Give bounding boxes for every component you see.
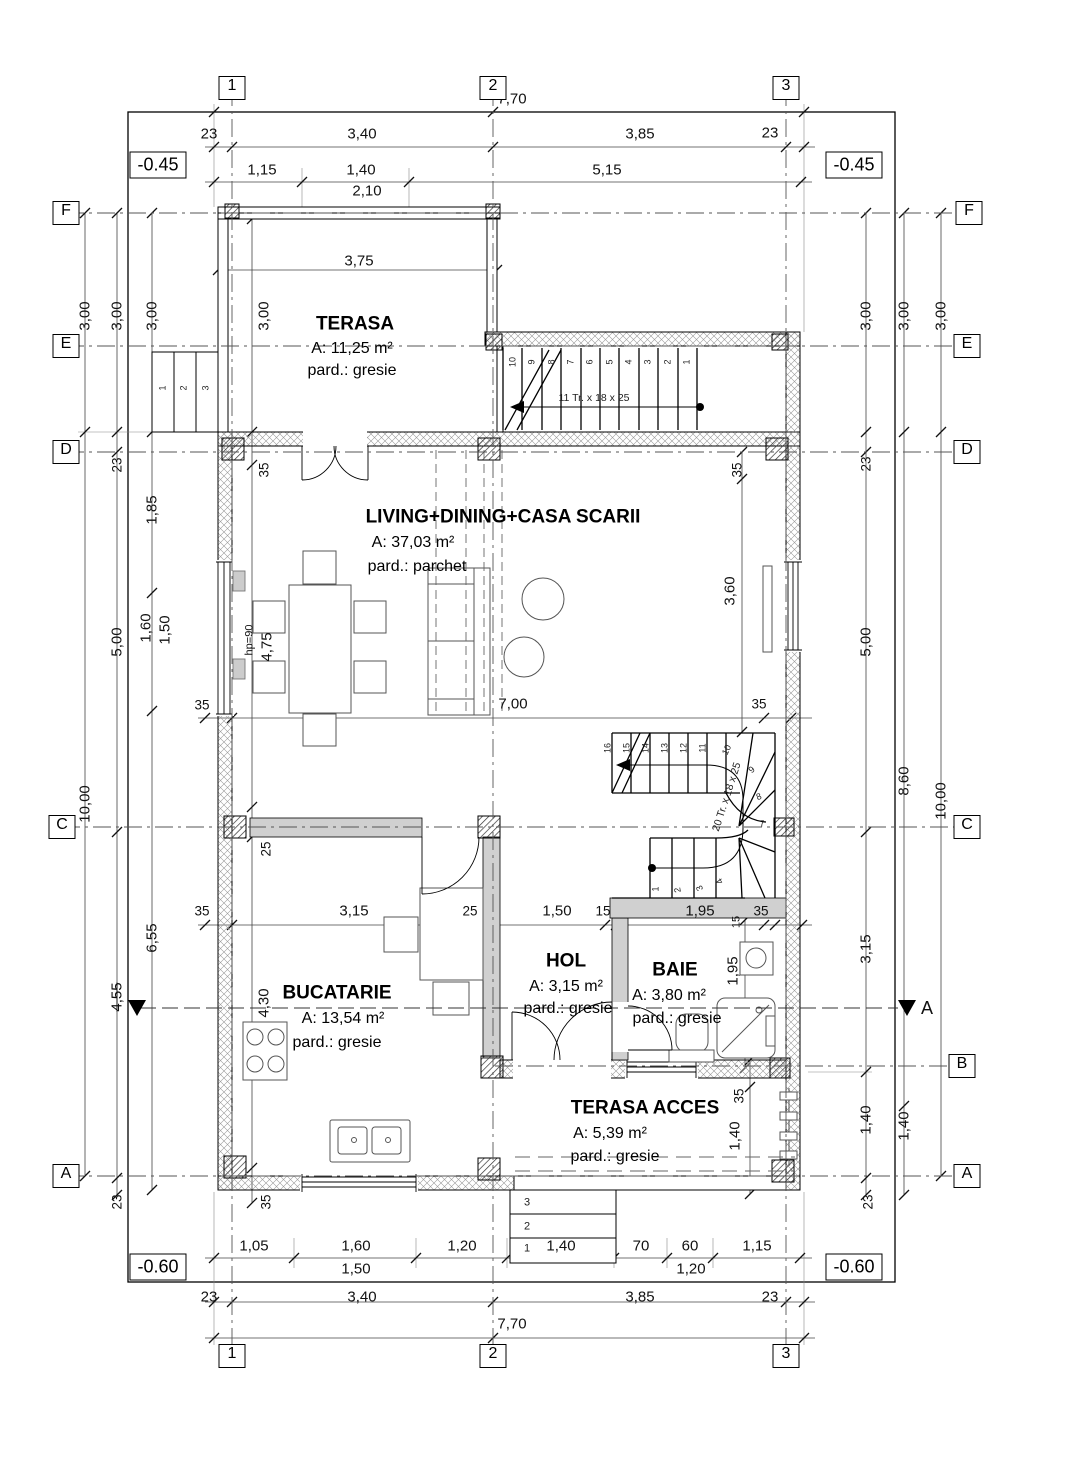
dim-label-revised: 4,55: [110, 982, 125, 1011]
dim-label: 1,95: [726, 956, 741, 985]
stair-tread-number: 6: [586, 359, 595, 364]
dim-label: 35: [194, 698, 209, 712]
dim-label: 25: [259, 841, 273, 856]
dim-label: 1,95: [685, 904, 714, 919]
stair-tread-number: 11: [699, 743, 708, 752]
room-name: HOL: [546, 952, 586, 971]
grid-bubble-col: 2: [480, 1344, 507, 1368]
dim-label: 5,00: [859, 627, 874, 656]
dim-label: 23: [861, 1194, 875, 1209]
room-area: A: 37,03 m²: [372, 535, 455, 551]
dim-label: 10,00: [934, 782, 949, 820]
room-area: A: 11,25 m²: [311, 341, 393, 357]
dim-label: 70: [633, 1239, 650, 1254]
room-name: LIVING+DINING+CASA SCARII: [366, 508, 641, 527]
dim-label: 8,60: [897, 766, 912, 795]
dim-label: 3,85: [625, 1290, 654, 1305]
room-area: A: 3,80 m²: [632, 988, 706, 1004]
dim-label: 3,85: [625, 127, 654, 142]
room-floor: pard.: gresie: [524, 1001, 613, 1017]
room-floor: pard.: gresie: [633, 1011, 722, 1027]
room-floor: pard.: parchet: [368, 559, 467, 575]
stair-main-winder: [612, 733, 775, 898]
dim-label: 23: [762, 126, 779, 141]
dim-label: 1,40: [859, 1105, 874, 1134]
dimension-lines: [85, 147, 941, 1338]
room-floor: pard.: gresie: [293, 1035, 382, 1051]
dim-label: 23: [201, 1290, 218, 1305]
dim-label: 7,70: [497, 1317, 526, 1332]
stair-note: 11 Tr. x 18 x 25: [558, 393, 629, 404]
exterior-step-number: 1: [159, 385, 168, 390]
room-area: A: 5,39 m²: [573, 1126, 647, 1142]
dim-label: 15: [732, 916, 743, 928]
dim-label: 7,00: [498, 697, 527, 712]
dim-label: 3,00: [257, 301, 272, 330]
dim-label: 3,15: [339, 904, 368, 919]
dim-label: 35: [257, 462, 271, 477]
stair-tread-number: 10: [509, 357, 518, 367]
dim-label: 3,60: [723, 576, 738, 605]
dim-label: 60: [682, 1239, 699, 1254]
stair-tread-number: 7: [759, 819, 765, 828]
dim-label: 1,50: [341, 1262, 370, 1277]
dim-label: 25: [462, 904, 477, 918]
dim-label: 6,55: [145, 923, 160, 952]
dim-label: 5,15: [592, 163, 621, 178]
grid-bubble-col: 3: [773, 76, 800, 100]
dim-label: 1,60: [139, 613, 154, 642]
grid-bubble-row: F: [956, 201, 983, 225]
dim-label: 23: [762, 1290, 779, 1305]
grid-bubble-row: D: [954, 440, 981, 464]
dim-label: 1,20: [676, 1262, 705, 1277]
dim-label: 1,50: [158, 615, 173, 644]
stair-tread-number: 5: [606, 359, 615, 364]
exterior-step-number: 2: [180, 385, 189, 390]
dim-label: 1,20: [447, 1239, 476, 1254]
grid-bubble-row: F: [53, 201, 80, 225]
stair-tread-number: 13: [661, 743, 670, 753]
grid-bubble-row: B: [949, 1054, 976, 1078]
stair-tread-number: 1: [683, 359, 692, 364]
dim-label: 3,15: [859, 934, 874, 963]
dim-label: 35: [194, 904, 209, 918]
elevation-badge: -0.45: [129, 152, 186, 179]
dim-label: 2,10: [352, 184, 381, 199]
dim-label: 10,00: [78, 785, 93, 823]
floor-plan-sheet: 1 2 3 1 2 3 F E D C A F E D C B A -0.45 …: [0, 0, 1073, 1480]
dim-label: 23: [110, 1194, 124, 1209]
stair-tread-number: 7: [567, 359, 576, 364]
elevation-badge: -0.45: [825, 152, 882, 179]
elevation-badge: -0.60: [825, 1254, 882, 1281]
dim-label: 1,15: [742, 1239, 771, 1254]
stair-tread-number: 8: [548, 359, 557, 364]
grid-bubble-row: C: [954, 815, 981, 839]
elevation-badge: -0.60: [129, 1254, 186, 1281]
grid-bubble-row: A: [53, 1164, 80, 1188]
stair-tread-number: 2: [664, 359, 673, 364]
dim-label: 3,40: [347, 1290, 376, 1305]
stair-tread-number: 16: [604, 743, 613, 753]
dim-label: 23: [110, 457, 124, 472]
exterior-step-number: 3: [202, 385, 211, 390]
dim-label: 5,00: [110, 627, 125, 656]
dim-label: 23: [201, 127, 218, 142]
dim-label: 35: [751, 697, 766, 711]
dim-label: 1,60: [341, 1239, 370, 1254]
grid-bubble-row: A: [954, 1164, 981, 1188]
grid-bubble-col: 3: [773, 1344, 800, 1368]
stair-tread-number: 9: [528, 359, 537, 364]
dim-label: 15: [595, 904, 610, 918]
dim-label: 35: [259, 1194, 273, 1209]
grid-bubble-col: 2: [480, 76, 507, 100]
room-name: TERASA: [316, 315, 394, 334]
room-floor: pard.: gresie: [571, 1149, 660, 1165]
grid-bubble-col: 1: [219, 1344, 246, 1368]
dim-label: 3,00: [859, 301, 874, 330]
dim-label: 1,40: [346, 163, 375, 178]
stair-tread-number: 1: [652, 886, 661, 891]
exterior-step-number: 1: [524, 1244, 530, 1255]
stair-tread-number: 3: [644, 359, 653, 364]
dim-label: 3,00: [110, 301, 125, 330]
dim-label: 1,05: [239, 1239, 268, 1254]
window-parapet-label: hp=90: [245, 625, 256, 656]
stair-tread-number: 4: [625, 359, 634, 364]
stair-tread-number: 15: [623, 743, 632, 753]
dim-label: 4,30: [257, 988, 272, 1017]
room-area: A: 13,54 m²: [302, 1011, 385, 1027]
grid-bubble-row: E: [954, 334, 981, 358]
grid-axes: [62, 88, 969, 1356]
baie-door-opening: [611, 1002, 629, 1052]
dim-label: 35: [730, 462, 744, 477]
room-name: TERASA ACCES: [571, 1099, 720, 1118]
dim-label: 35: [732, 1088, 746, 1103]
dim-label: 1,85: [145, 495, 160, 524]
room-floor: pard.: gresie: [308, 363, 397, 379]
stair-tread-number: 12: [680, 743, 689, 753]
section-label: A: [921, 999, 933, 1017]
room-area: A: 3,15 m²: [529, 979, 603, 995]
dim-label: 1,15: [247, 163, 276, 178]
grid-bubble-col: 1: [219, 76, 246, 100]
grid-bubble-row: C: [49, 815, 76, 839]
dim-label: 3,00: [145, 301, 160, 330]
dim-label: 23: [859, 456, 873, 471]
dim-label: 1,40: [728, 1121, 743, 1150]
dim-label: 35: [753, 904, 768, 918]
dim-label: 3,00: [78, 301, 93, 330]
stair-tread-number: 14: [642, 743, 651, 753]
dim-label: 1,50: [542, 904, 571, 919]
dimension-ticks: [80, 107, 946, 1343]
dim-label: 1,40: [546, 1239, 575, 1254]
dim-label: 3,40: [347, 127, 376, 142]
exterior-step-number: 3: [524, 1198, 530, 1209]
dim-label: 3,00: [934, 301, 949, 330]
room-name: BAIE: [652, 961, 697, 980]
extension-lines: [78, 104, 872, 1345]
grid-bubble-row: E: [53, 334, 80, 358]
exterior-step-number: 2: [524, 1222, 530, 1233]
grid-bubble-row: D: [53, 440, 80, 464]
dim-label: 3,00: [897, 301, 912, 330]
dim-label: 4,75: [260, 632, 275, 661]
dim-label: 3,75: [344, 254, 373, 269]
dim-label: 1,40: [897, 1111, 912, 1140]
room-name: BUCATARIE: [282, 984, 391, 1003]
